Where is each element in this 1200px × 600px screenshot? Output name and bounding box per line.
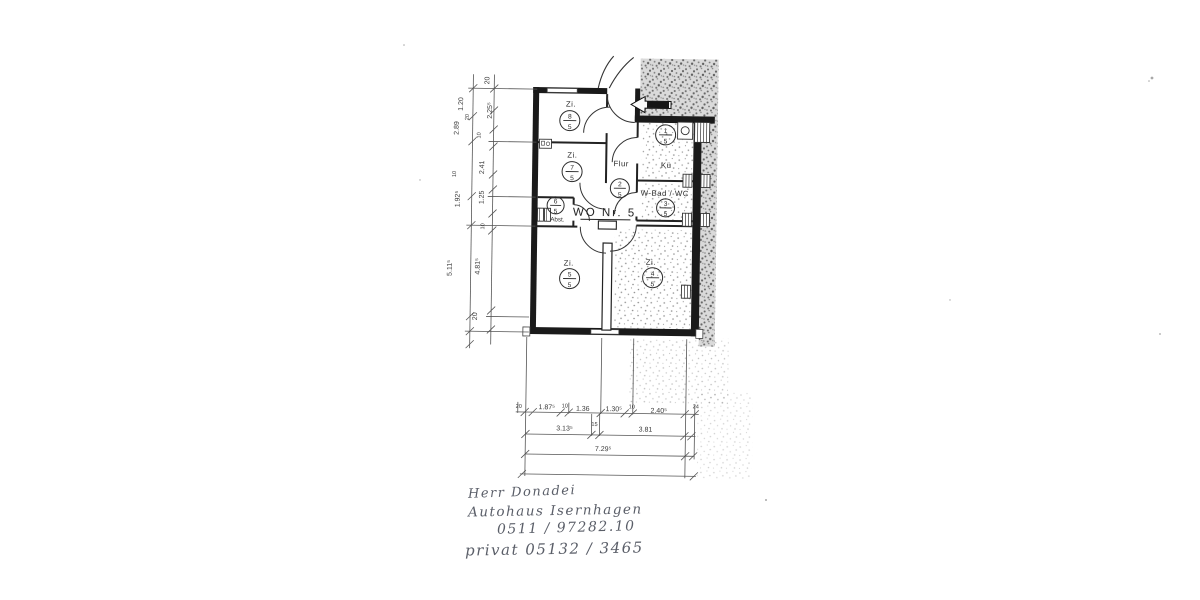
svg-text:15: 15 (591, 422, 597, 428)
handwritten-note-line-4: privat 05132 / 3465 (465, 538, 644, 559)
svg-text:5: 5 (664, 138, 668, 145)
room-label-zi-8: Zi. 8 5 (560, 99, 580, 131)
svg-text:10: 10 (562, 403, 568, 409)
svg-text:4.81⁵: 4.81⁵ (475, 258, 482, 275)
svg-text:Zi.: Zi. (564, 258, 574, 267)
svg-text:1.20: 1.20 (458, 97, 465, 111)
room-label-zi-7: Zi. 7 5 (562, 150, 582, 182)
svg-text:3.81: 3.81 (639, 427, 653, 434)
svg-text:20: 20 (472, 312, 479, 320)
wall-box (539, 139, 551, 148)
scanned-floorplan-document: Zi. 8 5 Zi. 7 5 Flur 2 5 (0, 0, 1200, 600)
svg-text:5: 5 (651, 281, 655, 288)
svg-text:2.40⁵: 2.40⁵ (650, 408, 667, 415)
svg-text:3: 3 (664, 201, 668, 208)
svg-text:Abst.: Abst. (550, 216, 565, 223)
svg-text:10: 10 (477, 132, 483, 138)
svg-text:7.29⁵: 7.29⁵ (595, 446, 612, 453)
svg-text:5: 5 (568, 272, 572, 279)
svg-text:5.11⁵: 5.11⁵ (447, 260, 454, 276)
svg-text:10: 10 (629, 404, 635, 410)
svg-text:10: 10 (452, 171, 458, 177)
svg-text:1.30⁵: 1.30⁵ (605, 406, 622, 413)
scan-noise (403, 44, 1161, 501)
dimension-labels-bottom: 20 1.87⁵ 10 1.36 1.30⁵ 10 2.40⁵ 24 3.13⁵… (515, 402, 699, 455)
svg-text:1: 1 (664, 128, 668, 135)
svg-text:Zi.: Zi. (567, 151, 577, 160)
apartment-number-label: WO Nr. 5 (573, 207, 636, 220)
svg-text:7: 7 (570, 165, 574, 172)
svg-text:5: 5 (554, 208, 558, 215)
svg-text:20: 20 (516, 404, 522, 410)
room-label-flur: Flur 2 5 (610, 159, 630, 199)
svg-text:5: 5 (664, 211, 668, 218)
svg-text:24: 24 (693, 404, 699, 410)
svg-text:2.41: 2.41 (479, 160, 486, 174)
svg-text:Zi.: Zi. (566, 100, 576, 109)
svg-text:5: 5 (570, 175, 574, 182)
svg-text:1.36: 1.36 (576, 406, 590, 413)
svg-text:Flur: Flur (613, 159, 629, 168)
radiator-icon (681, 285, 690, 298)
svg-text:WO Nr. 5: WO Nr. 5 (573, 207, 636, 220)
dimension-chain-left (465, 74, 538, 349)
svg-text:3.13⁵: 3.13⁵ (556, 425, 573, 432)
svg-text:4: 4 (651, 271, 655, 278)
svg-text:1.87⁵: 1.87⁵ (538, 404, 555, 411)
svg-text:Zi.: Zi. (646, 258, 656, 267)
svg-text:5: 5 (568, 124, 572, 131)
svg-text:1.25: 1.25 (479, 190, 486, 204)
svg-text:Kü: Kü (661, 161, 672, 170)
svg-text:2: 2 (618, 181, 622, 188)
svg-text:W-Bad / WC: W-Bad / WC (641, 189, 689, 199)
room-label-zi-5: Zi. 5 5 (559, 258, 579, 289)
svg-text:10: 10 (480, 223, 486, 229)
svg-text:20: 20 (484, 76, 491, 84)
svg-text:5: 5 (618, 192, 622, 199)
svg-text:20: 20 (465, 114, 471, 120)
svg-text:8: 8 (568, 114, 572, 121)
entrance-marks (598, 56, 633, 88)
svg-text:2.25⁵: 2.25⁵ (487, 102, 494, 119)
svg-text:1.92⁵: 1.92⁵ (455, 191, 462, 208)
svg-text:2.89: 2.89 (454, 121, 461, 135)
svg-text:6: 6 (554, 198, 558, 205)
svg-text:5: 5 (568, 282, 572, 289)
